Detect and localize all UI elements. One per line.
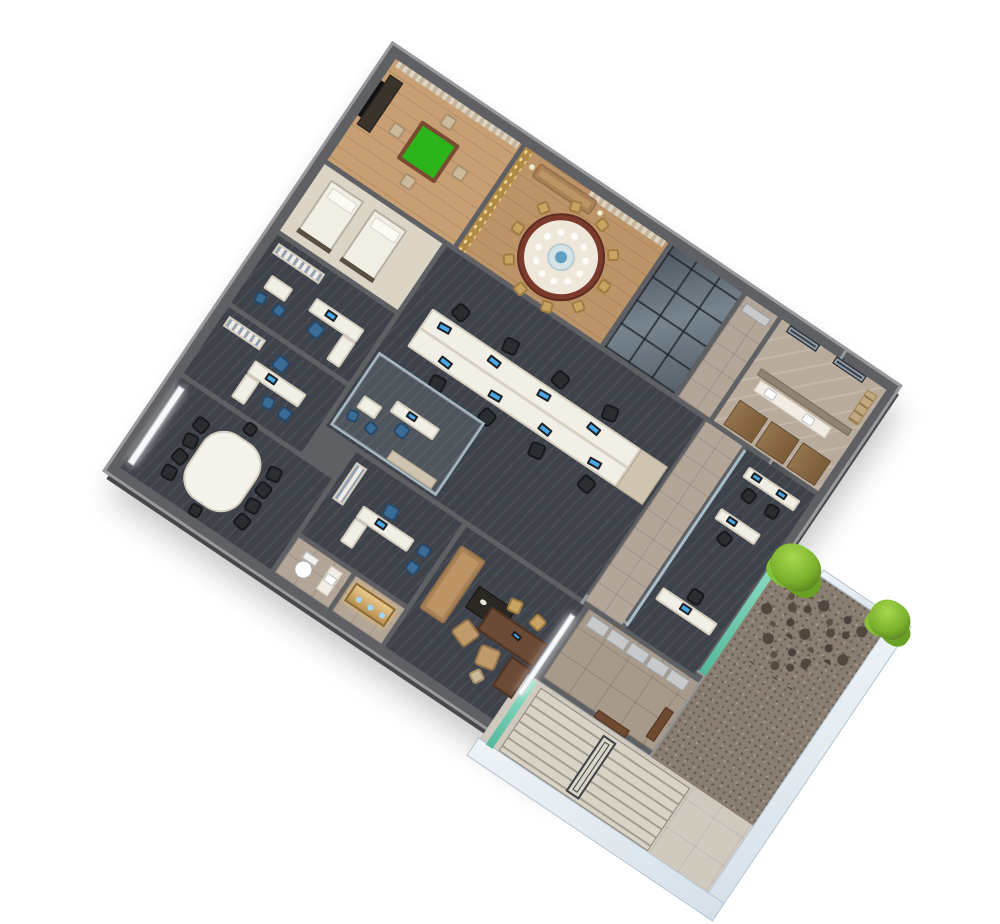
floorplan-render <box>0 0 1000 924</box>
display-item <box>378 611 386 619</box>
display-item <box>355 596 363 604</box>
floorplan-scene <box>52 45 1000 924</box>
table-decor <box>479 598 488 606</box>
display-item <box>366 603 374 611</box>
dining-chair <box>607 249 619 261</box>
dining-chair <box>503 253 515 265</box>
